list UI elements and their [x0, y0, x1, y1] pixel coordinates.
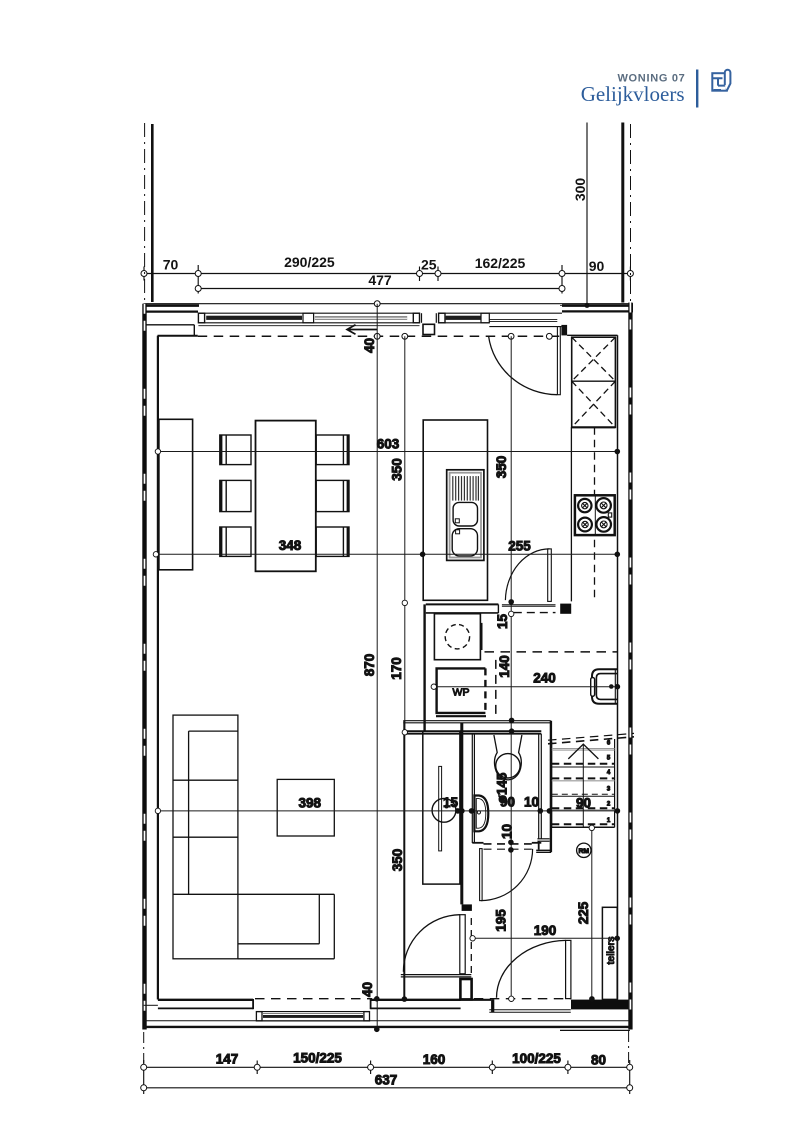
svg-text:190: 190 [534, 923, 557, 938]
svg-text:tellers: tellers [605, 936, 617, 964]
svg-text:225: 225 [576, 901, 591, 924]
svg-text:40: 40 [362, 338, 377, 353]
svg-text:477: 477 [368, 272, 392, 288]
svg-text:10: 10 [524, 795, 539, 810]
svg-text:160: 160 [423, 1052, 446, 1067]
svg-text:290/225: 290/225 [284, 254, 335, 270]
svg-text:90: 90 [576, 795, 591, 810]
svg-text:240: 240 [533, 671, 556, 686]
svg-text:603: 603 [377, 437, 400, 452]
svg-text:170: 170 [389, 657, 404, 680]
svg-text:300: 300 [572, 178, 588, 202]
svg-text:15: 15 [443, 795, 459, 810]
svg-text:100/225: 100/225 [512, 1051, 561, 1066]
svg-text:15: 15 [495, 614, 510, 630]
svg-text:70: 70 [163, 257, 179, 273]
svg-text:25: 25 [421, 257, 437, 273]
svg-text:637: 637 [375, 1073, 398, 1088]
svg-text:RM: RM [579, 848, 590, 855]
svg-text:147: 147 [216, 1052, 239, 1067]
svg-text:350: 350 [389, 458, 404, 481]
svg-text:80: 80 [591, 1053, 606, 1068]
svg-text:398: 398 [299, 796, 322, 811]
svg-text:150/225: 150/225 [293, 1051, 342, 1066]
svg-text:90: 90 [589, 258, 605, 274]
svg-text:348: 348 [279, 538, 302, 553]
svg-text:255: 255 [508, 539, 531, 554]
svg-text:ø145: ø145 [494, 772, 509, 803]
svg-text:140: 140 [497, 655, 512, 678]
svg-text:195: 195 [493, 909, 508, 932]
svg-text:162/225: 162/225 [475, 255, 526, 271]
svg-text:40: 40 [360, 982, 375, 997]
svg-text:350: 350 [390, 849, 405, 872]
svg-text:870: 870 [362, 654, 377, 677]
svg-text:350: 350 [494, 456, 509, 479]
svg-text:WP: WP [453, 687, 470, 699]
svg-text:10: 10 [500, 824, 515, 839]
svg-text:Gelijkvloers: Gelijkvloers [581, 82, 685, 106]
